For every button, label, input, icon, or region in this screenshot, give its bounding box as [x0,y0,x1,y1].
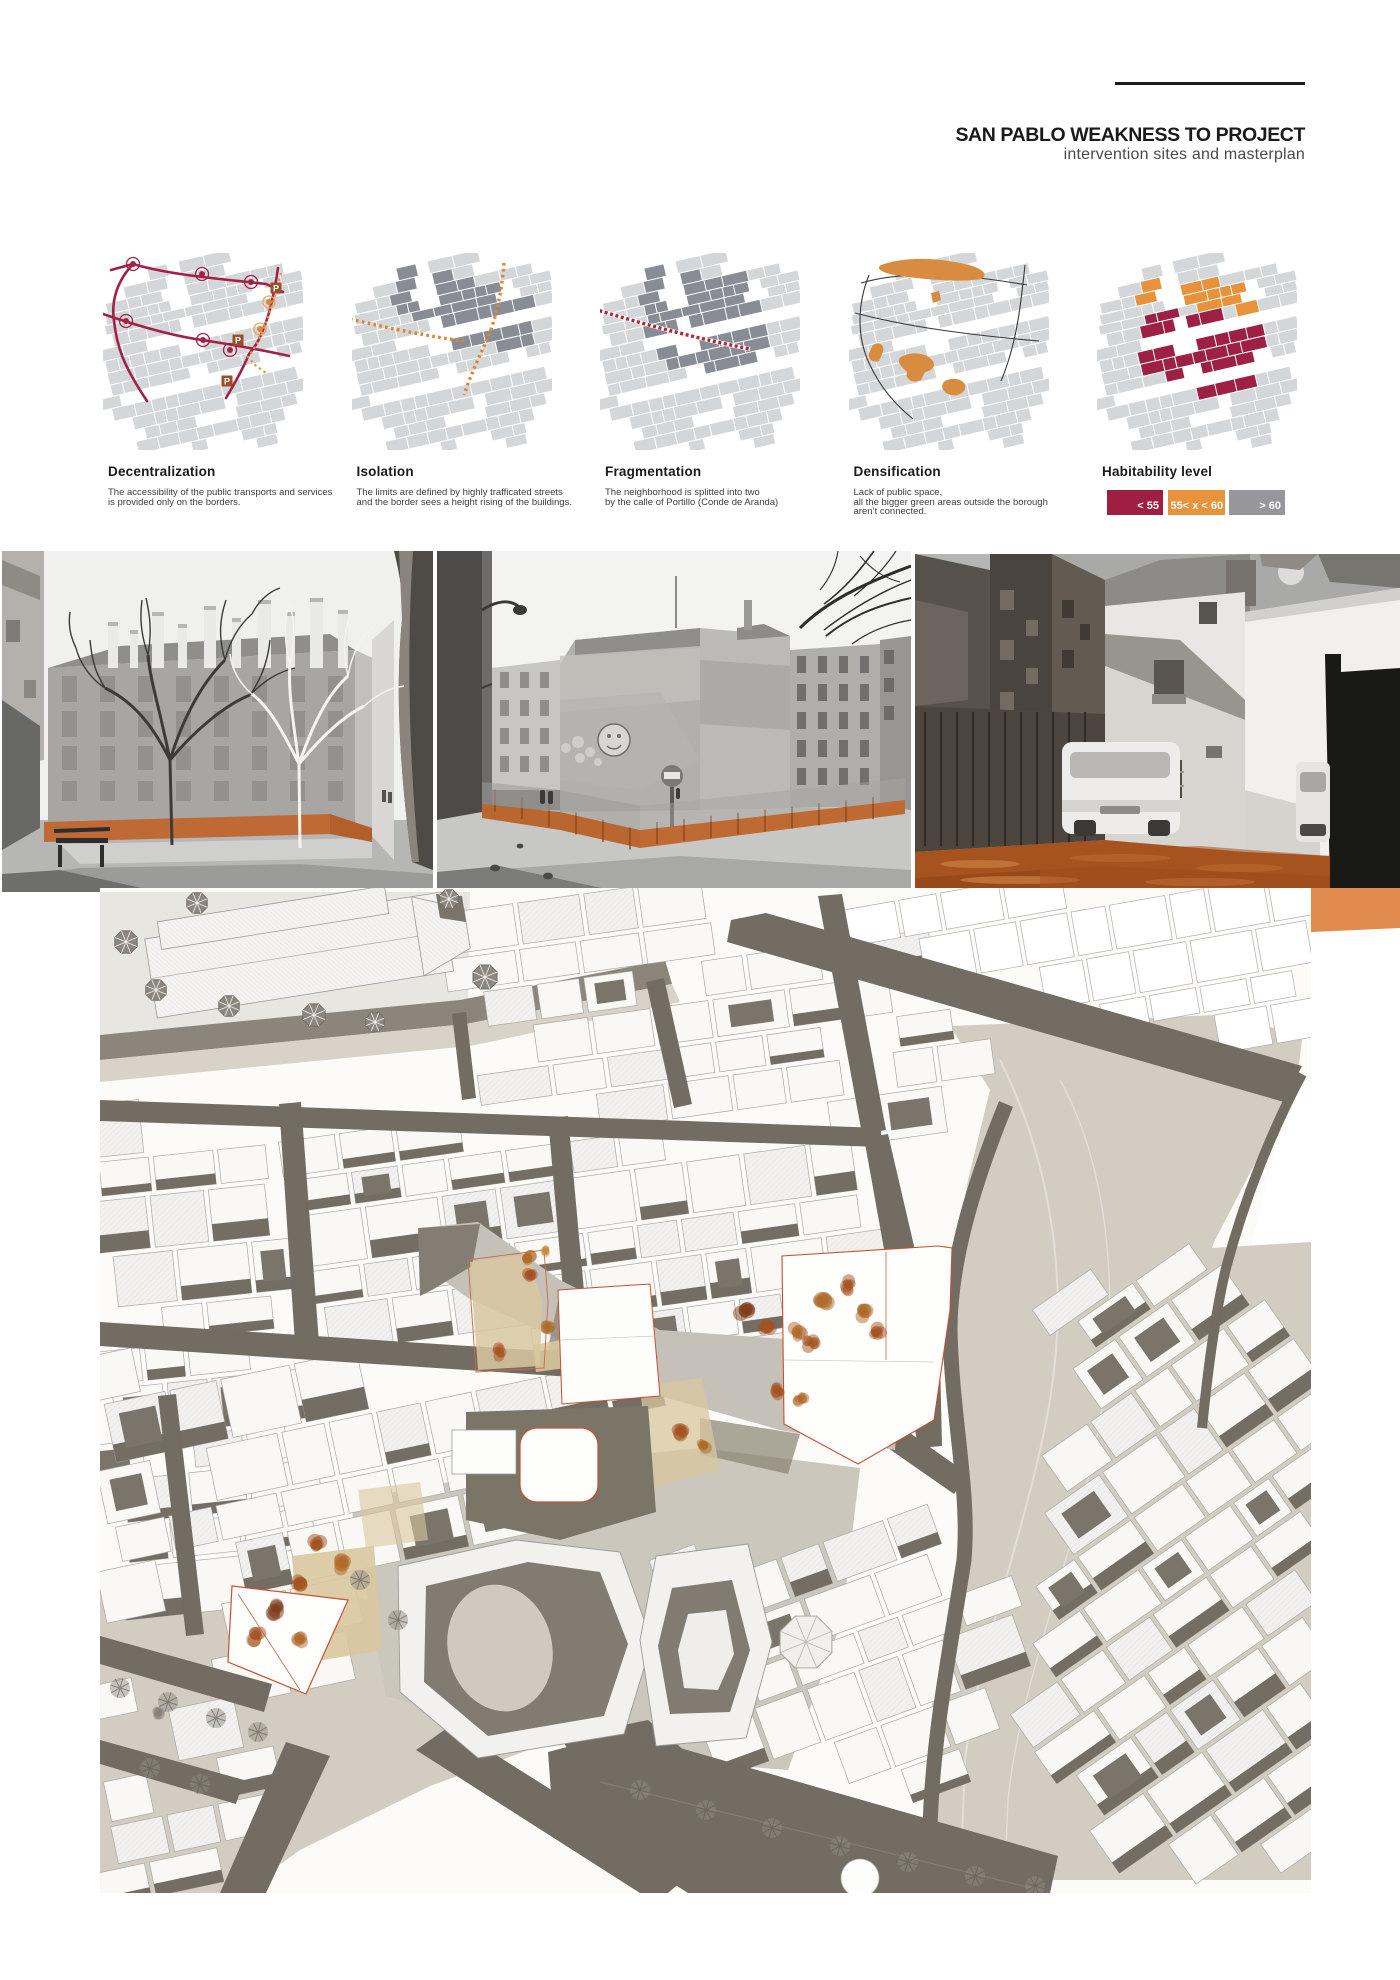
svg-text:P: P [273,283,279,293]
svg-text:P: P [224,376,230,386]
svg-text:P: P [235,335,241,345]
